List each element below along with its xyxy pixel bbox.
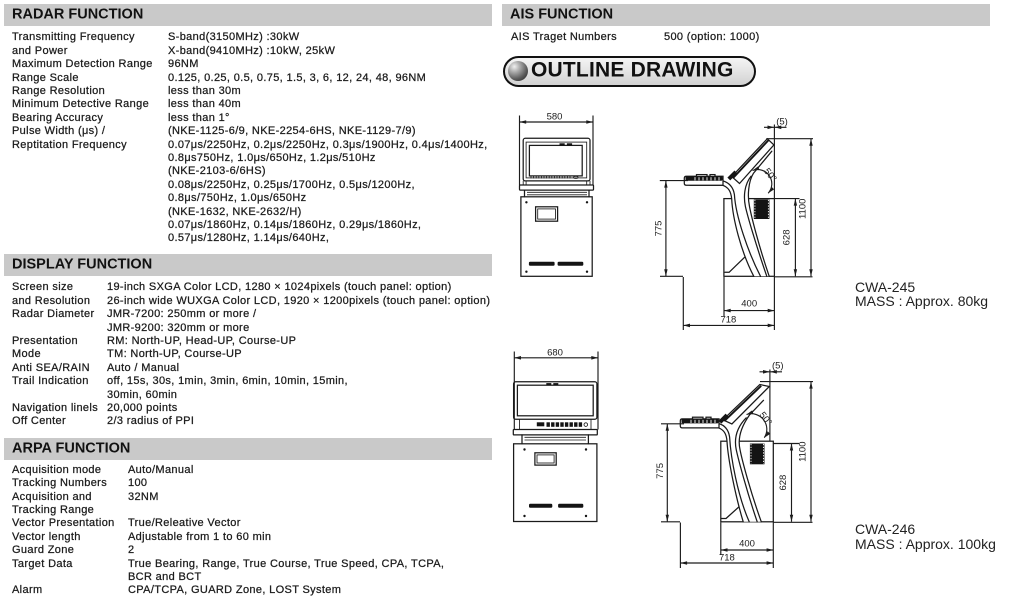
svg-text:1100: 1100: [797, 199, 808, 219]
svg-text:1100: 1100: [797, 441, 808, 461]
svg-text:775: 775: [655, 463, 666, 479]
svg-text:628: 628: [778, 475, 789, 491]
svg-text:400: 400: [741, 299, 757, 310]
svg-text:50°: 50°: [761, 166, 779, 184]
svg-text:400: 400: [739, 539, 755, 550]
svg-text:50°: 50°: [757, 410, 775, 428]
svg-text:775: 775: [654, 221, 665, 237]
svg-text:680: 680: [547, 347, 563, 358]
svg-text:580: 580: [547, 112, 563, 123]
svg-text:(5): (5): [776, 116, 788, 127]
svg-text:718: 718: [719, 553, 735, 564]
svg-text:718: 718: [720, 314, 736, 325]
svg-text:628: 628: [782, 229, 793, 245]
svg-text:(5): (5): [772, 360, 784, 371]
